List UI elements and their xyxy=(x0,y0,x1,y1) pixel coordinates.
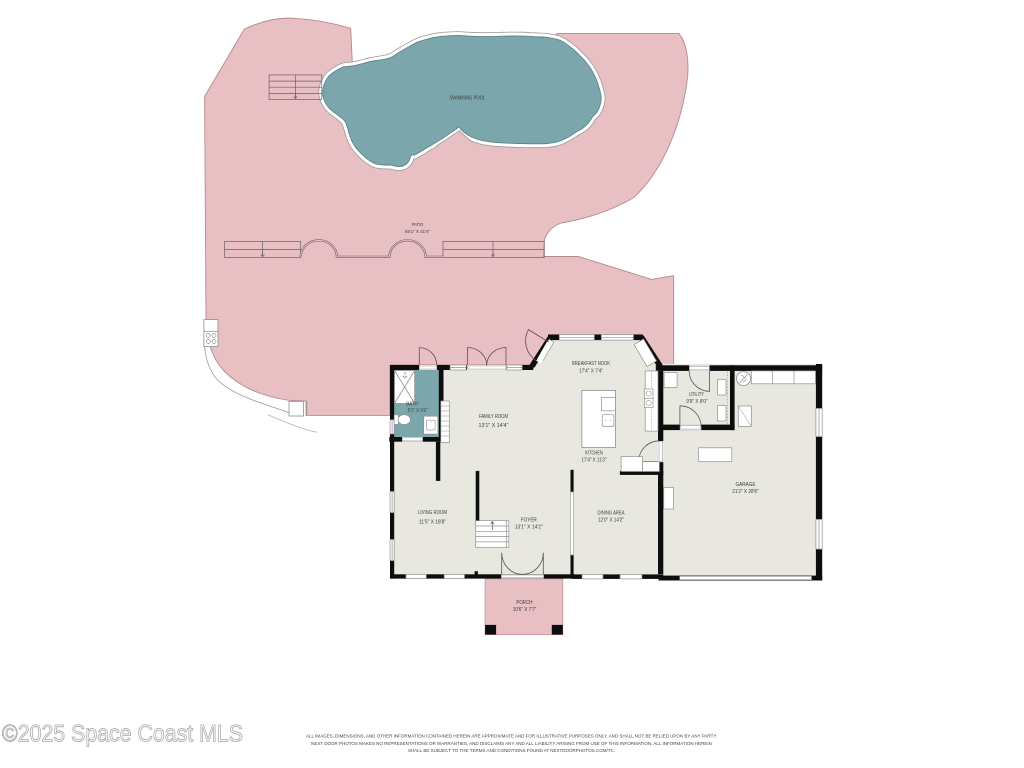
svg-text:LIVING ROOM: LIVING ROOM xyxy=(418,510,447,516)
svg-text:12'0" X 14'2": 12'0" X 14'2" xyxy=(598,517,624,523)
svg-text:65'1" X 41'4": 65'1" X 41'4" xyxy=(405,229,430,235)
svg-text:SHALL BE SUBJECT TO THE TERMS: SHALL BE SUBJECT TO THE TERMS AND CONDIT… xyxy=(408,748,615,753)
svg-text:FOYER: FOYER xyxy=(521,518,537,524)
svg-text:BATH: BATH xyxy=(406,401,418,407)
svg-text:PATIO: PATIO xyxy=(412,222,424,228)
svg-text:13'1" X 14'4": 13'1" X 14'4" xyxy=(479,423,509,429)
svg-text:GARAGE: GARAGE xyxy=(736,482,757,488)
svg-text:DINING AREA: DINING AREA xyxy=(598,510,626,516)
svg-text:6'1" X 9'6": 6'1" X 9'6" xyxy=(408,408,428,414)
svg-text:17'4" X 7'4": 17'4" X 7'4" xyxy=(579,369,603,375)
svg-text:PORCH: PORCH xyxy=(516,600,532,606)
svg-text:ALL IMAGES, DIMENSIONS, AND OT: ALL IMAGES, DIMENSIONS, AND OTHER INFORM… xyxy=(306,733,717,738)
svg-text:KITCHEN: KITCHEN xyxy=(585,451,603,457)
svg-text:FAMILY ROOM: FAMILY ROOM xyxy=(479,414,508,420)
svg-text:SWIMMING POOL: SWIMMING POOL xyxy=(450,96,486,102)
svg-text:9'9" X 8'0": 9'9" X 8'0" xyxy=(686,399,708,405)
svg-text:NEXT DOOR PHOTOS MAKES NO REPR: NEXT DOOR PHOTOS MAKES NO REPRESENTATION… xyxy=(311,741,712,746)
svg-text:©2025 Space Coast MLS: ©2025 Space Coast MLS xyxy=(2,721,243,748)
svg-text:13'1" X 14'2": 13'1" X 14'2" xyxy=(515,525,543,531)
svg-text:BREAKFAST NOOK: BREAKFAST NOOK xyxy=(572,361,611,367)
svg-text:17'4" X 11'3": 17'4" X 11'3" xyxy=(582,457,607,463)
svg-text:UTILITY: UTILITY xyxy=(689,392,705,398)
svg-text:11'5" X 18'8": 11'5" X 18'8" xyxy=(419,519,446,525)
svg-text:21'2" X 28'6": 21'2" X 28'6" xyxy=(732,489,759,495)
svg-text:10'6" X 7'7": 10'6" X 7'7" xyxy=(513,607,537,613)
